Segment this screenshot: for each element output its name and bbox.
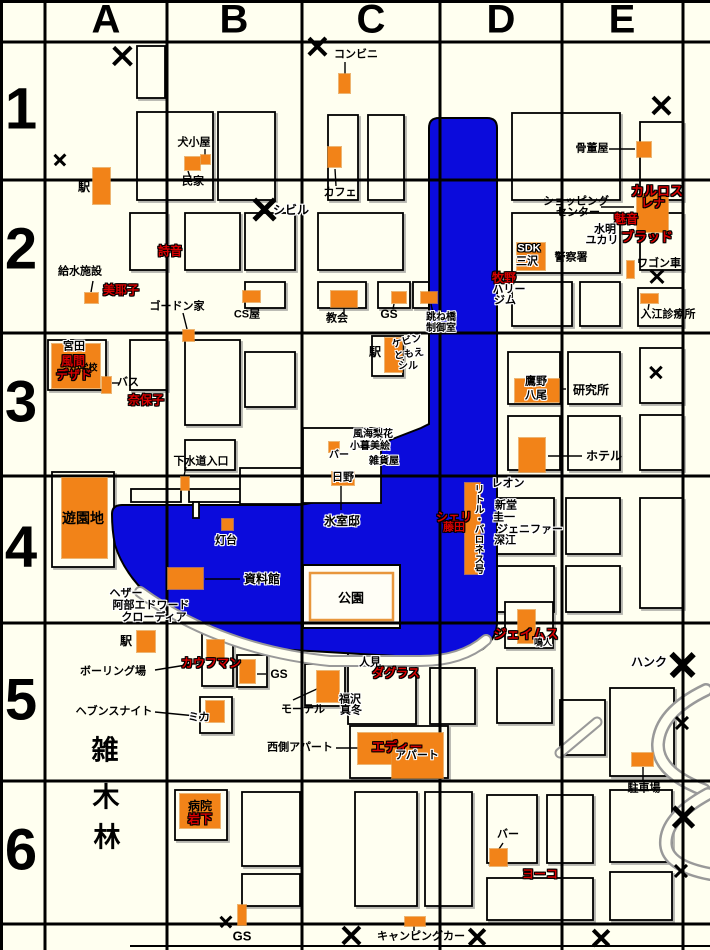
map-label: クローディア: [121, 613, 186, 624]
map-label: カウフマン: [181, 657, 241, 669]
building-marker: [243, 291, 260, 302]
map-label: 入江診療所: [641, 310, 696, 321]
map-label: 小暮美絵: [350, 442, 390, 452]
map-label: バス: [117, 378, 139, 389]
building-marker: [183, 330, 194, 341]
map-label: コンビニ: [334, 50, 378, 61]
x-mark: [252, 197, 278, 223]
map-label: 三沢: [516, 257, 538, 268]
map-label: 下水道入口: [174, 457, 229, 468]
building-marker: [632, 753, 653, 766]
building-marker: [328, 147, 341, 167]
map-label: 資料館: [244, 573, 280, 585]
x-mark: [467, 927, 487, 947]
map-label: 風海梨花: [353, 430, 393, 440]
building-marker: [519, 438, 545, 472]
x-mark: [341, 926, 362, 947]
map-label: 牧野: [492, 272, 516, 284]
map-label: 駅: [120, 635, 132, 647]
map-label: シビル: [273, 204, 309, 216]
grid-row-label: 2: [5, 216, 37, 283]
building-marker: [331, 291, 357, 307]
map-label: 美耶子: [103, 284, 139, 296]
map-label: ボーリング場: [80, 667, 146, 678]
building-marker: [641, 294, 658, 303]
map-label: 病院: [188, 800, 212, 812]
grid-column-label: C: [357, 0, 386, 43]
map-label: 阿部エドワード: [113, 601, 190, 612]
map-label: モーテル: [281, 705, 325, 716]
map-label: 雑: [92, 738, 119, 765]
map-label: GS: [270, 668, 287, 680]
map-label: ゴードン家: [150, 302, 205, 313]
map-label: 奈保子: [128, 394, 164, 406]
map-label: 新堂: [495, 501, 517, 512]
map-label: 八尾: [525, 391, 547, 402]
map-label: 跳ね橋: [426, 313, 456, 323]
map-label: 給水施設: [58, 267, 102, 278]
building-marker: [490, 849, 507, 866]
building-marker: [627, 261, 634, 278]
building-marker: [317, 671, 339, 702]
map-label: ワゴン車: [637, 259, 681, 270]
map-label: ヘザー: [110, 589, 143, 600]
map-label: 詩音: [158, 245, 182, 257]
building-marker: [240, 660, 255, 683]
x-mark: [649, 269, 665, 285]
building-marker: [201, 155, 210, 164]
map-label: 鷹野: [525, 377, 547, 388]
map-label: レオン: [492, 479, 525, 490]
map-label: CS屋: [234, 310, 260, 321]
map-label: ダグラス: [372, 667, 420, 679]
map-label: 公園: [338, 592, 364, 605]
x-mark: [671, 805, 696, 830]
x-mark: [220, 916, 233, 929]
building-marker: [102, 377, 111, 393]
map-label: 制御室: [426, 324, 456, 334]
x-mark: [54, 154, 67, 167]
building-marker: [185, 157, 200, 170]
map-label: 木: [93, 785, 120, 812]
map-label: 駅: [78, 181, 90, 193]
map-label: 日野: [332, 473, 354, 484]
map-label: SDK: [517, 244, 540, 255]
map-label: 深江: [494, 536, 516, 547]
x-mark: [649, 365, 663, 379]
building-marker: [222, 519, 233, 530]
map-label: 研究所: [573, 384, 609, 396]
map-label: 民家: [182, 177, 204, 188]
map-label: バー: [329, 451, 349, 461]
map-label: 灯台: [215, 536, 237, 547]
map-label: レナ: [641, 197, 665, 209]
building-marker: [421, 292, 437, 303]
grid-row-label: 1: [5, 76, 37, 143]
map-label: GS: [233, 930, 252, 943]
map-label: デザド: [56, 369, 92, 381]
building-marker: [181, 477, 189, 490]
map-label: センター: [556, 208, 600, 219]
map-label: 駐車場: [628, 784, 661, 795]
map-label: 教会: [326, 314, 348, 325]
map-label: 宮田: [63, 342, 85, 353]
grid-column-label: E: [609, 0, 636, 43]
map-label: ヘブンスナイト: [76, 707, 153, 718]
x-mark: [674, 864, 689, 879]
map-label: 骨董屋: [576, 144, 609, 155]
map-label: 犬小屋: [178, 138, 211, 149]
x-mark: [307, 37, 328, 58]
map-label: 林: [94, 825, 121, 852]
grid-row-label: 4: [5, 514, 37, 581]
map-label: キャンピングカー: [377, 932, 465, 943]
building-marker: [85, 293, 98, 303]
grid-row-label: 6: [5, 817, 37, 884]
map-label: ジム: [494, 296, 516, 307]
x-mark: [591, 928, 611, 948]
map-label: ホテル: [586, 450, 622, 462]
grid-column-label: A: [92, 0, 121, 43]
map-label: バー: [497, 830, 519, 841]
map-label: カフェ: [324, 188, 357, 199]
building-marker: [392, 292, 406, 303]
map-label: アパート: [395, 751, 439, 762]
building-marker: [405, 917, 425, 926]
grid-row-label: 3: [5, 369, 37, 436]
building-marker: [637, 142, 651, 157]
map-label: 圭一: [493, 513, 515, 524]
map-label: 風間: [61, 355, 85, 367]
map-label: 真冬: [340, 706, 362, 717]
building-marker: [238, 905, 246, 925]
town-map: ABCDE123456コンビニ犬小屋民家駅カフェ骨董屋カルロスレナショッピングセ…: [0, 0, 710, 950]
map-label: シル: [398, 362, 418, 372]
map-label: 遊園地: [62, 511, 104, 525]
x-mark: [669, 651, 697, 679]
map-label: ブラッド: [621, 231, 673, 244]
map-label: 駅: [369, 346, 381, 358]
map-label: 氷室邸: [324, 515, 360, 527]
map-label: 雑貨屋: [369, 457, 399, 467]
map-label: GS: [380, 308, 397, 320]
map-label: 岩下: [188, 813, 212, 825]
map-label: 警察署: [555, 253, 588, 264]
map-label: 西側アパート: [267, 743, 333, 754]
grid-column-label: B: [220, 0, 249, 43]
map-label: 魅音: [614, 213, 638, 225]
map-label: ミカ: [188, 713, 210, 724]
map-label: 藤田: [443, 523, 465, 534]
map-label: ヨーコ: [522, 868, 558, 880]
map-label: リトル・バロネス号: [472, 484, 482, 574]
x-mark: [651, 96, 672, 117]
grid-column-label: D: [487, 0, 516, 43]
building-marker: [137, 631, 155, 652]
x-mark: [675, 716, 690, 731]
map-label: 鳴人: [534, 639, 552, 648]
building-marker: [339, 74, 350, 93]
x-mark: [111, 45, 133, 67]
building-marker: [93, 168, 110, 204]
grid-row-label: 5: [5, 667, 37, 734]
map-label: ユカリ: [586, 236, 619, 247]
building-marker: [168, 568, 203, 589]
map-label: ハンク: [631, 656, 667, 668]
